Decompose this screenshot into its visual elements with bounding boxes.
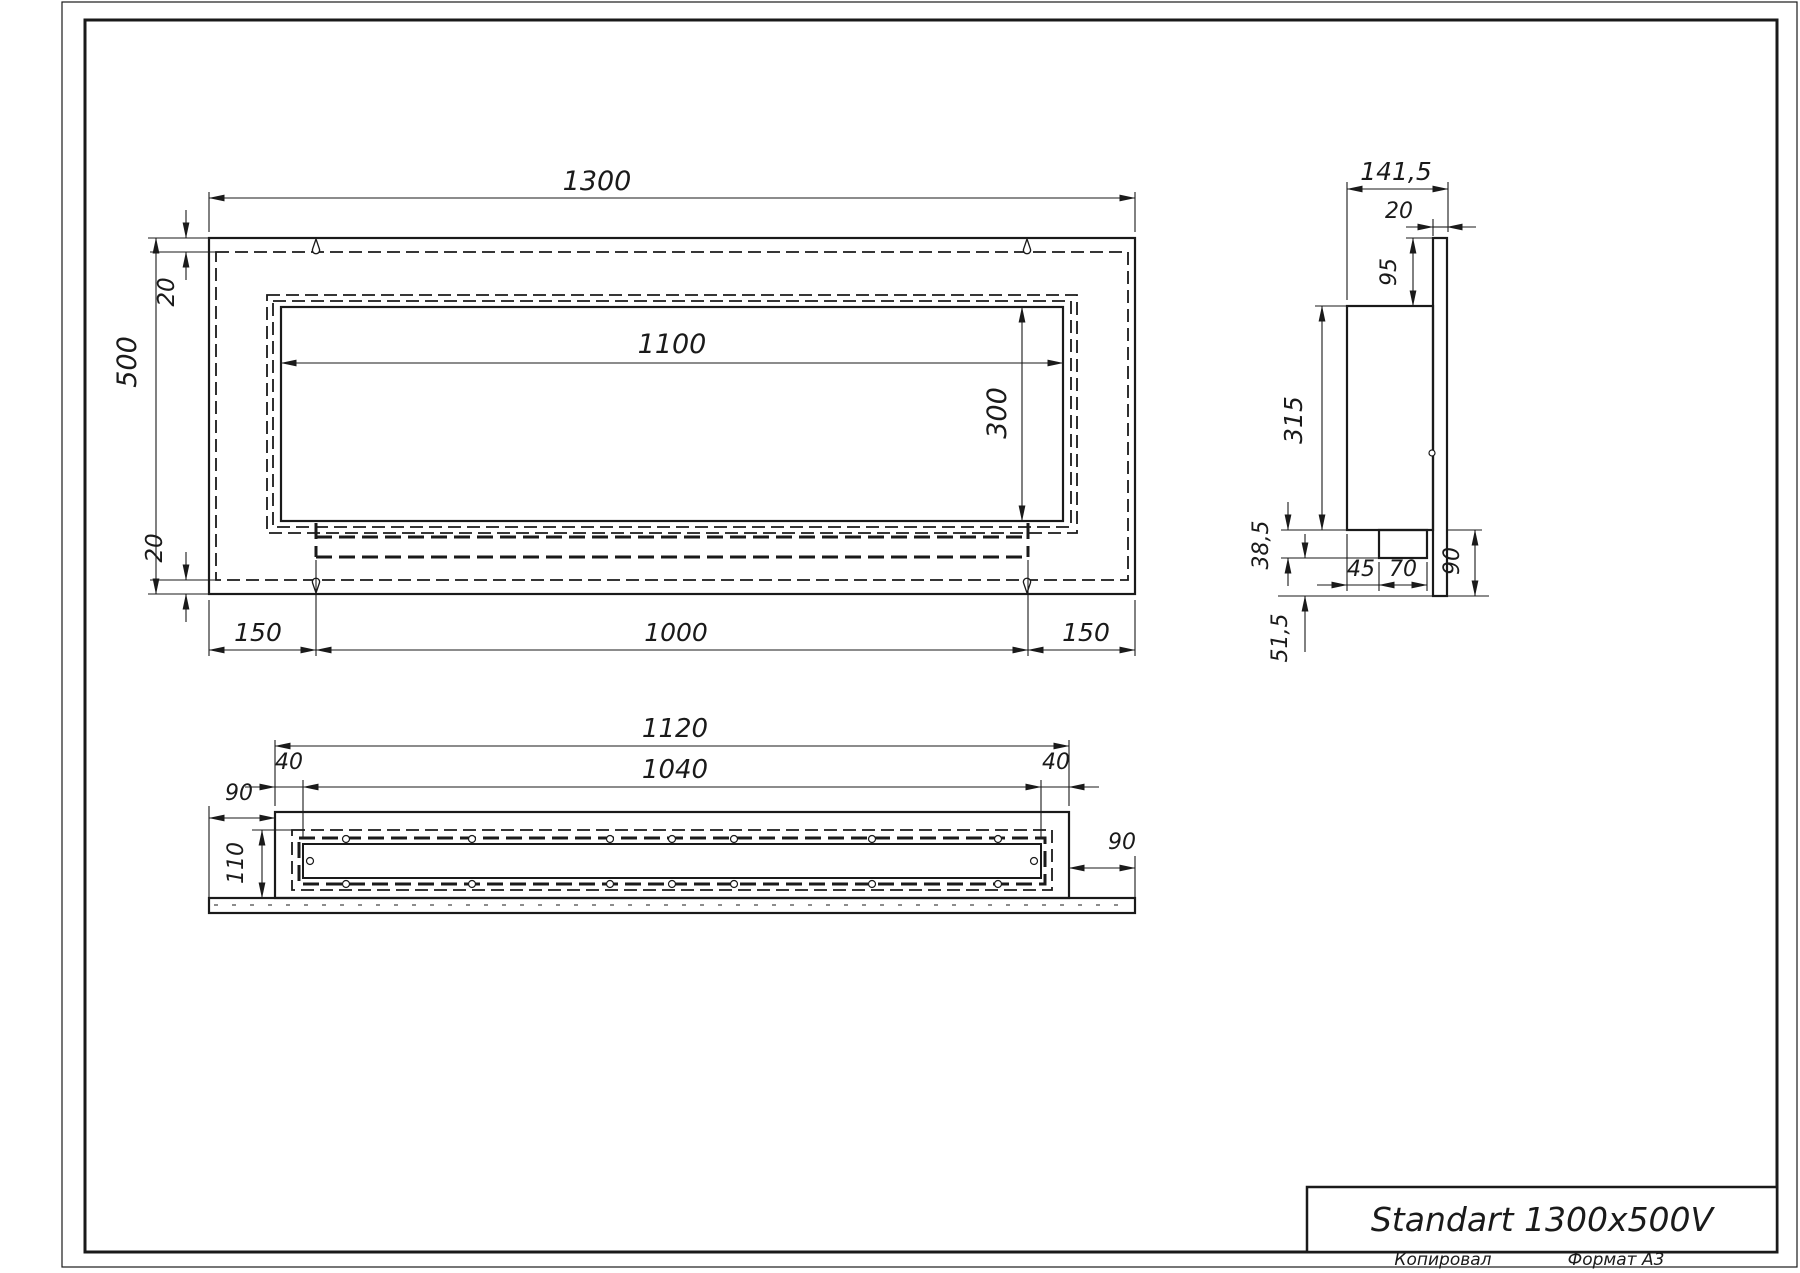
format-label: Формат А3	[1568, 1250, 1665, 1270]
dim-label-1120: 1120	[642, 714, 708, 744]
drawing-title: Standart 1300x500V	[1371, 1200, 1716, 1239]
dim-label-1100: 1100	[638, 329, 707, 360]
dim-label-40-right: 40	[1042, 750, 1070, 775]
inner-frame	[85, 20, 1777, 1252]
dim-label-315: 315	[1279, 396, 1308, 444]
dim-label-90-right: 90	[1108, 830, 1136, 855]
dim-label-1000: 1000	[644, 618, 708, 647]
dim-side-bottom-offset: 51,5	[1268, 534, 1433, 662]
dim-front-width: 1300	[209, 166, 1135, 232]
dim-label-20-side: 20	[1385, 199, 1413, 224]
dim-side-plate-thickness: 20	[1385, 199, 1476, 236]
title-block: Standart 1300x500V Копировал Формат А3	[1307, 1187, 1777, 1270]
dim-label-20-bottom: 20	[142, 533, 168, 562]
bottom-view: 1120 40 1040 40 90 90	[209, 714, 1136, 913]
side-bracket	[1379, 530, 1427, 558]
side-body	[1347, 306, 1433, 530]
dim-bottom-right-margin: 90	[1069, 830, 1136, 898]
dim-side-bracket-chain: 45 70	[1317, 534, 1427, 591]
dim-bottom-inner-chain: 40 1040 40	[245, 750, 1099, 838]
dim-label-90-left: 90	[225, 781, 253, 806]
dim-label-95: 95	[1377, 258, 1402, 286]
dim-label-51-5: 51,5	[1268, 614, 1293, 663]
outer-border	[62, 2, 1797, 1267]
drawing-canvas: 1300 500 20 20	[0, 0, 1800, 1273]
dim-label-1300: 1300	[563, 166, 632, 197]
dim-label-90-side: 90	[1440, 547, 1465, 575]
dim-label-45: 45	[1347, 557, 1375, 582]
side-front-plate	[1433, 238, 1447, 596]
dim-opening-height: 300	[982, 307, 1022, 521]
side-view: 141,5 20 95 315 38,5	[1249, 157, 1489, 662]
dim-label-38-5: 38,5	[1249, 521, 1274, 570]
dim-side-body-height: 315	[1279, 306, 1347, 530]
dim-opening-width: 1100	[281, 329, 1063, 363]
keyhole-slot-top-right	[1023, 239, 1030, 254]
page-frame	[62, 2, 1797, 1267]
dim-label-20-top: 20	[154, 277, 180, 306]
dim-front-bottom-chain: 150 1000 150	[209, 560, 1135, 656]
dim-label-40-left: 40	[275, 750, 303, 775]
bottom-inner-box	[303, 844, 1041, 878]
dim-label-300: 300	[982, 387, 1013, 439]
bottom-front-plate	[209, 898, 1135, 913]
dim-label-70: 70	[1389, 557, 1417, 582]
dim-label-1040: 1040	[642, 755, 708, 785]
copied-label: Копировал	[1394, 1250, 1491, 1270]
dim-label-110: 110	[224, 842, 249, 884]
keyhole-slot-bottom-right	[1023, 578, 1030, 593]
dim-front-bottom-offset: 20	[142, 533, 216, 622]
dim-bottom-depth: 110	[224, 830, 292, 898]
dim-front-top-offset: 20	[150, 210, 216, 307]
dim-side-top-inset: 95	[1377, 238, 1433, 306]
dim-label-150-right: 150	[1062, 618, 1110, 647]
keyhole-slot-top-left	[312, 239, 319, 254]
drawing-sheet: 1300 500 20 20	[0, 0, 1800, 1273]
dim-label-141-5: 141,5	[1360, 157, 1432, 186]
dim-label-150-left: 150	[234, 618, 282, 647]
front-view: 1300 500 20 20	[112, 166, 1135, 656]
dim-label-500: 500	[112, 336, 143, 388]
side-hole	[1429, 450, 1435, 456]
